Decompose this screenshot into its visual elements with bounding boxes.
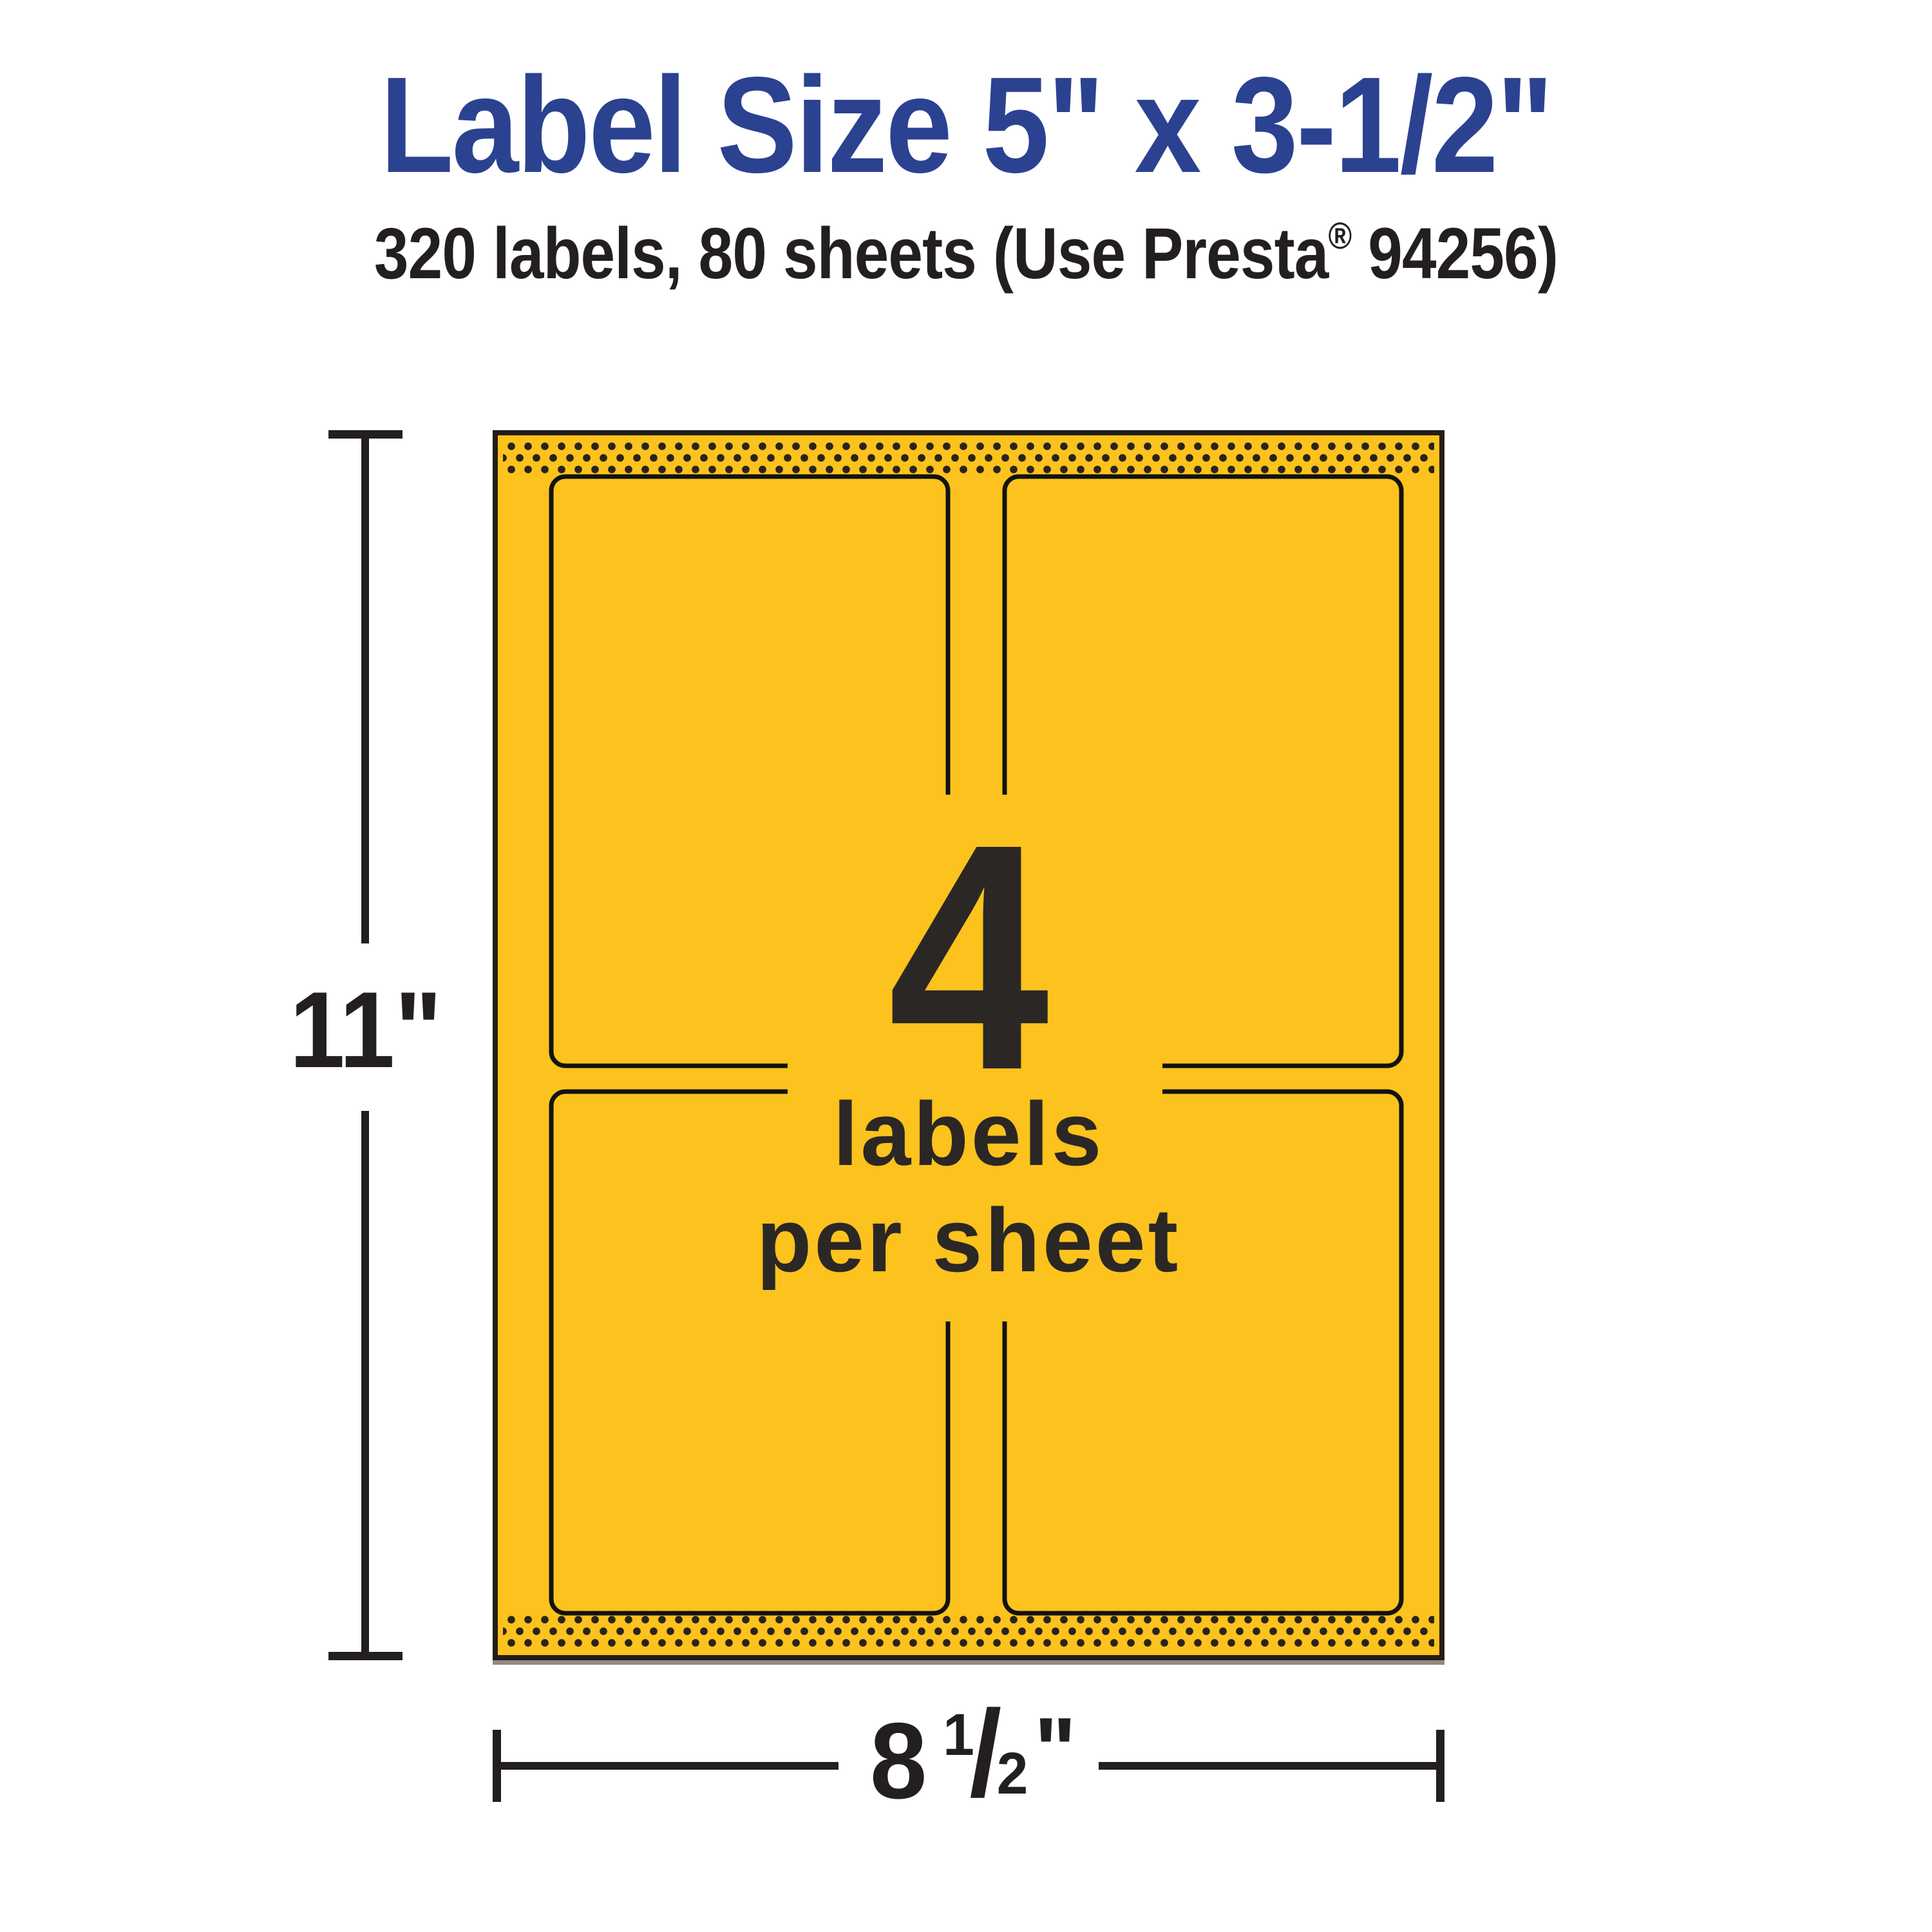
subtitle-text-prefix: 320 labels, 80 sheets (Use Presta [374, 213, 1329, 294]
labels-caption-line1: labels [498, 1089, 1439, 1179]
diagram-canvas: Label Size 5" x 3-1/2" 320 labels, 80 sh… [0, 0, 1932, 1932]
page-title: Label Size 5" x 3-1/2" [116, 57, 1816, 193]
labels-count: 4 [545, 796, 1392, 1118]
labels-caption-line2: per sheet [498, 1195, 1439, 1285]
width-whole-number: 8 [870, 1707, 927, 1815]
label-sheet: 4 labels per sheet [493, 430, 1444, 1660]
height-dimension-cap-bottom [328, 1652, 402, 1660]
registered-trademark-symbol: ® [1328, 218, 1351, 255]
height-dimension-line-lower [361, 1111, 369, 1660]
width-inch-mark: " [1034, 1704, 1076, 1797]
page-subtitle: 320 labels, 80 sheets (Use Presta® 94256… [135, 218, 1797, 290]
width-dimension-value: 8 1 / 2 " [844, 1707, 1103, 1829]
width-dimension-line-right [1099, 1762, 1444, 1770]
width-dimension-line-left [493, 1762, 838, 1770]
subtitle-text-suffix: 94256) [1351, 213, 1558, 294]
width-fraction-denominator: 2 [997, 1744, 1028, 1803]
height-dimension-line-upper [361, 430, 369, 943]
width-dimension-cap-right [1436, 1730, 1444, 1802]
height-dimension-value: 11" [247, 976, 484, 1084]
